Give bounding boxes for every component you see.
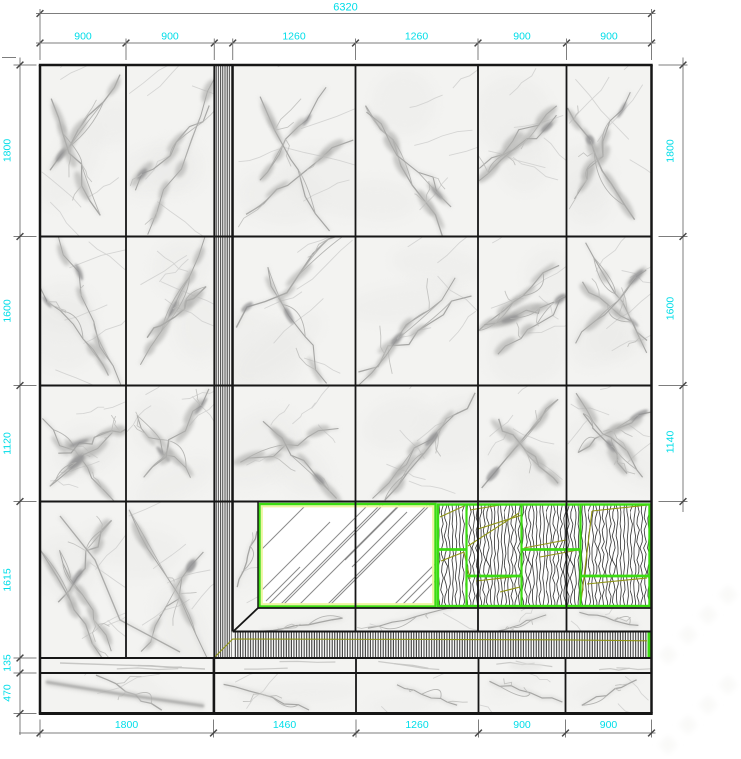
- svg-text:900: 900: [74, 31, 92, 43]
- svg-text:1800: 1800: [115, 719, 139, 731]
- svg-text:900: 900: [513, 31, 531, 43]
- svg-text:1615: 1615: [2, 568, 14, 592]
- svg-text:1600: 1600: [2, 299, 14, 323]
- svg-text:900: 900: [600, 719, 618, 731]
- svg-text:1140: 1140: [665, 431, 677, 454]
- svg-text:1600: 1600: [665, 297, 677, 321]
- svg-text:6320: 6320: [333, 2, 357, 14]
- svg-text:1260: 1260: [282, 31, 306, 43]
- svg-text:1460: 1460: [273, 719, 297, 731]
- svg-text:1260: 1260: [405, 719, 429, 731]
- svg-text:1120: 1120: [2, 432, 14, 455]
- svg-text:900: 900: [600, 31, 618, 43]
- svg-text:900: 900: [161, 31, 179, 43]
- svg-text:1260: 1260: [405, 31, 429, 43]
- svg-text:1800: 1800: [665, 139, 677, 163]
- svg-text:470: 470: [2, 684, 14, 702]
- svg-text:900: 900: [513, 719, 531, 731]
- svg-text:135: 135: [2, 654, 14, 672]
- svg-text:1800: 1800: [2, 139, 14, 163]
